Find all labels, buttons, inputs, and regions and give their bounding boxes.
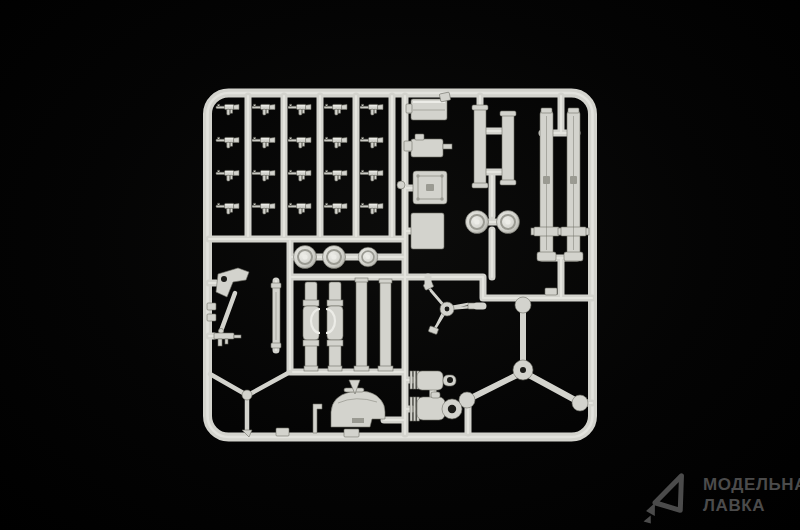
large-tripod-part [459, 297, 588, 411]
support-tubes-cluster [303, 278, 393, 371]
watermark: МОДЕЛЬНАЯ ЛАВКА [640, 468, 800, 522]
watermark-line1: МОДЕЛЬНАЯ [703, 474, 800, 495]
flat-bar-part [271, 283, 281, 348]
sprue-photograph [0, 0, 800, 530]
model-lavka-logo-icon [637, 465, 698, 526]
gun-receiver-part [404, 134, 452, 157]
spoked-traverse-part [423, 277, 483, 335]
watermark-line2: ЛАВКА [703, 495, 800, 516]
watermark-text: МОДЕЛЬНАЯ ЛАВКА [703, 474, 800, 516]
recoil-cylinders [410, 371, 462, 421]
hook-rod-part [313, 404, 322, 433]
square-plate-part [411, 213, 444, 249]
small-gun-part [214, 333, 241, 346]
bipod-part [210, 372, 290, 437]
elevating-bracket-part [216, 268, 249, 334]
sprue [207, 92, 593, 437]
road-wheels-row [294, 246, 378, 269]
dome-baseplate-part [313, 380, 385, 433]
product-photo: МОДЕЛЬНАЯ ЛАВКА [0, 0, 800, 530]
